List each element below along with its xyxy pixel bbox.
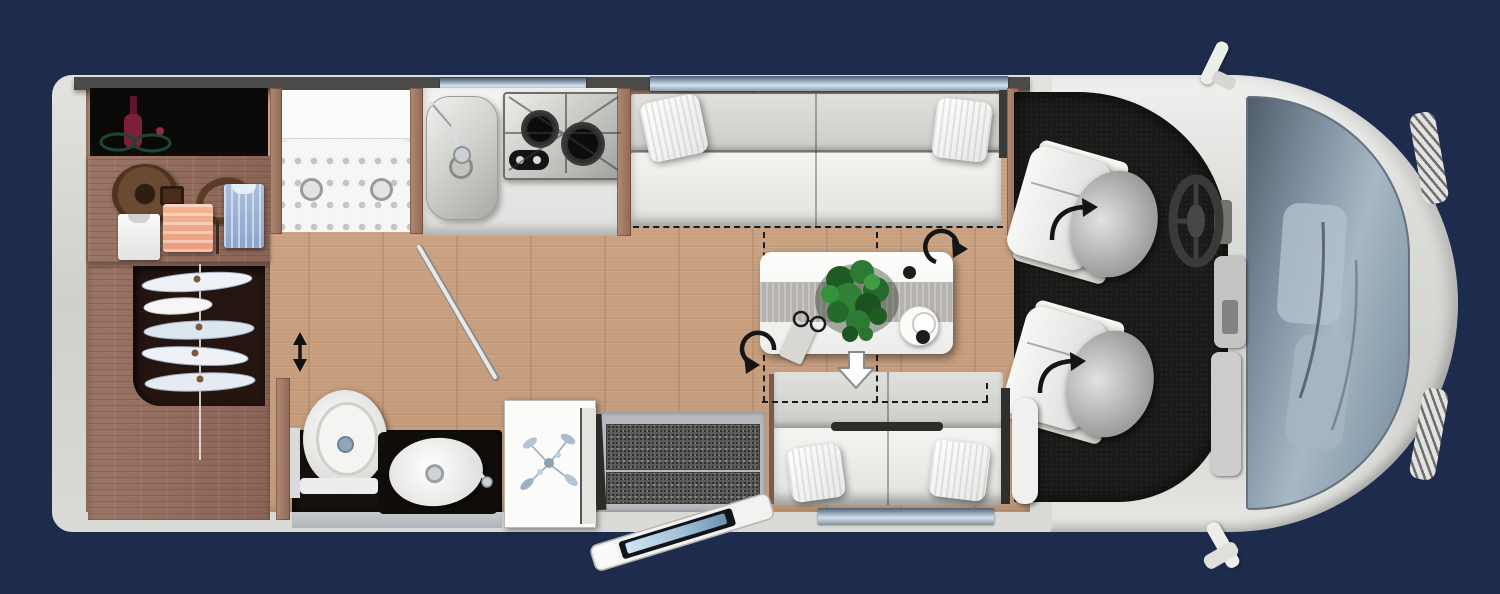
kitchen-sink	[426, 96, 498, 220]
stove-knob	[533, 156, 541, 164]
entry-step-tread	[606, 424, 760, 470]
wardrobe	[88, 262, 270, 520]
shower-frame-left	[270, 88, 282, 234]
cab-entry-armrest	[1012, 398, 1038, 504]
small-box	[160, 186, 184, 206]
toilet-tank	[300, 478, 378, 494]
bed-outline-dashed	[762, 401, 988, 403]
bed-outline-dashed	[986, 383, 988, 401]
rear-storage	[90, 88, 268, 158]
sink-drain	[449, 155, 473, 179]
stove-control-panel	[509, 150, 549, 170]
basin-drain	[424, 463, 445, 484]
sofa-seam	[815, 94, 817, 228]
bathroom-wall-post	[276, 378, 290, 520]
pedal-block	[1222, 300, 1238, 334]
folded-shirt-white	[118, 214, 160, 260]
shower-frame-right	[410, 88, 423, 234]
toilet	[303, 390, 387, 488]
sofa-pillow-right	[931, 97, 994, 163]
window-lounge	[650, 76, 1008, 91]
sofa-bed-dashed-line	[633, 226, 1003, 228]
entry-step-tread	[606, 472, 760, 504]
burner-large	[561, 122, 605, 166]
bathroom-door-jamb	[290, 428, 300, 498]
burner-small	[521, 110, 559, 148]
floorplan-scene	[0, 0, 1500, 594]
bench-right-post	[1001, 388, 1010, 504]
table-dark-cup	[916, 330, 930, 344]
bench-fold-seam	[831, 422, 943, 431]
shirt-collar	[128, 214, 150, 223]
rear-shelf	[88, 156, 270, 262]
dinette-table	[760, 252, 953, 354]
toilet-flush-button	[337, 436, 354, 453]
shower-drain	[370, 178, 393, 201]
bench-pillow-right	[928, 439, 992, 503]
bench-pillow-left	[786, 443, 847, 504]
folded-shirt-blue	[224, 184, 264, 248]
shirt-collar	[232, 184, 256, 194]
folded-shirt-peach	[163, 204, 213, 252]
kitchen-end-post	[617, 88, 631, 236]
stove	[503, 92, 625, 180]
entry-jamb	[580, 408, 596, 524]
shower-tray	[282, 90, 410, 232]
shower-drain	[300, 178, 323, 201]
dashboard-reflection	[1276, 202, 1348, 326]
stove-knob	[516, 156, 524, 164]
table-dark-cup	[903, 266, 916, 279]
dashboard-unit	[1211, 352, 1241, 476]
shower-shelf	[282, 90, 410, 139]
dashboard-reflection	[1283, 333, 1354, 451]
bathroom-step	[292, 512, 502, 528]
bench-left-trim	[769, 374, 774, 504]
sofa-pillow-left	[638, 92, 709, 163]
window-bench	[818, 508, 994, 524]
wardrobe-rail	[199, 264, 201, 460]
pen	[216, 220, 219, 254]
bench-seam	[887, 372, 889, 505]
